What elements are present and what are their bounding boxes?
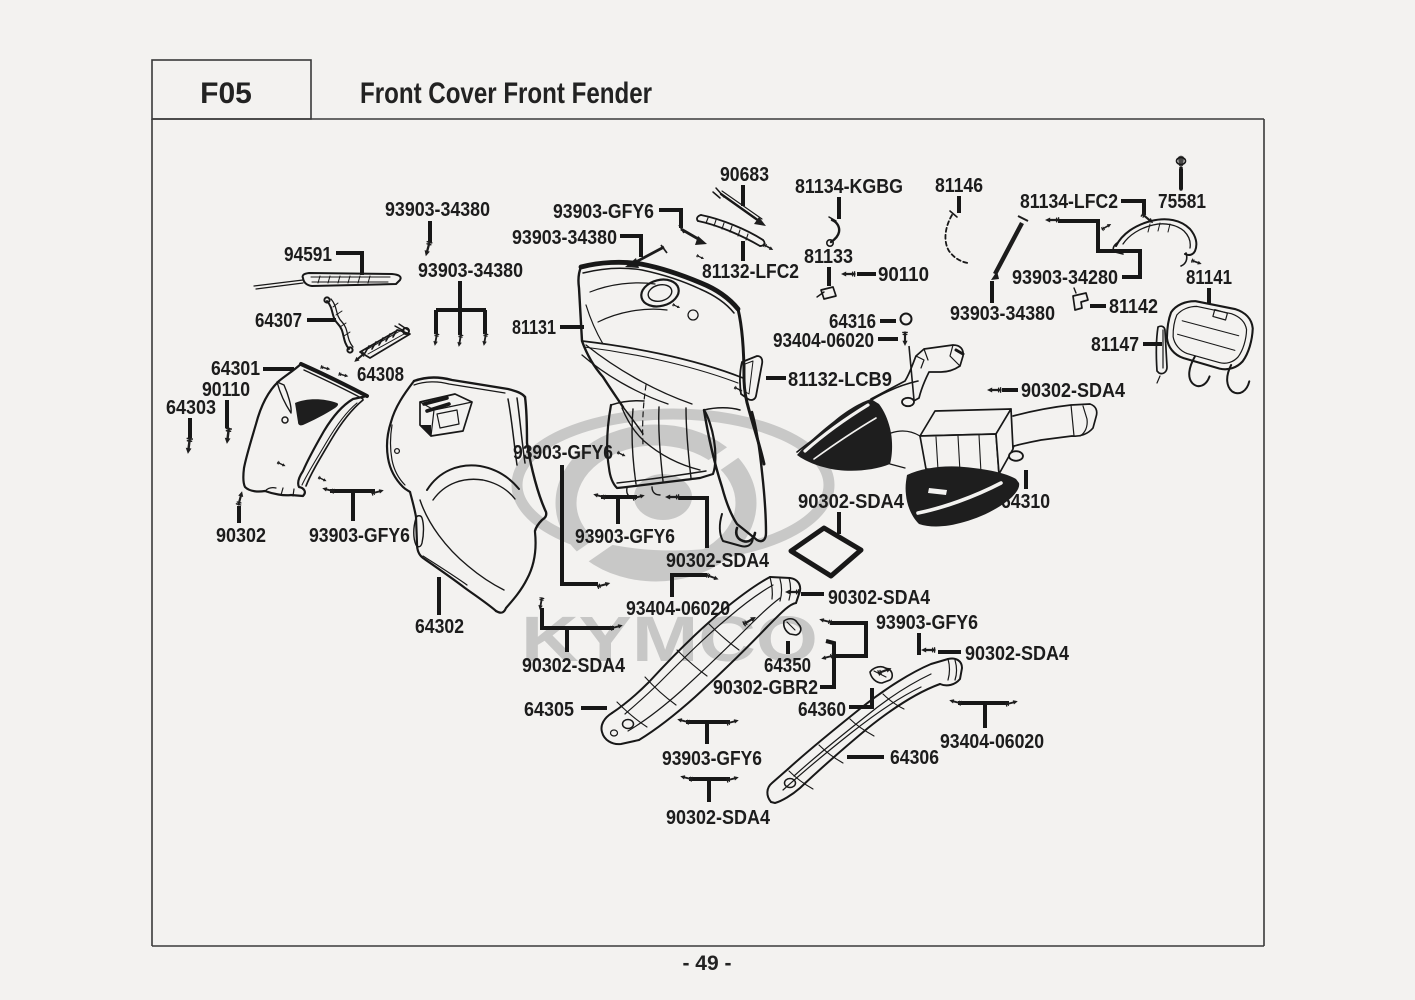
svg-text:90302-SDA4: 90302-SDA4 — [965, 643, 1070, 665]
svg-text:81134-LFC2: 81134-LFC2 — [1020, 191, 1118, 213]
svg-text:81131: 81131 — [512, 317, 556, 339]
svg-text:75581: 75581 — [1158, 191, 1206, 213]
svg-text:F05: F05 — [200, 77, 252, 110]
svg-text:64308: 64308 — [357, 364, 404, 386]
svg-text:90302-SDA4: 90302-SDA4 — [798, 491, 905, 513]
svg-text:90683: 90683 — [720, 164, 769, 186]
svg-text:94591: 94591 — [284, 244, 332, 266]
svg-text:93903-GFY6: 93903-GFY6 — [309, 525, 410, 547]
svg-text:64301: 64301 — [211, 358, 260, 380]
svg-text:93903-GFY6: 93903-GFY6 — [575, 526, 675, 548]
svg-text:93903-34380: 93903-34380 — [385, 199, 490, 221]
svg-text:90302-SDA4: 90302-SDA4 — [666, 550, 770, 572]
svg-text:93903-GFY6: 93903-GFY6 — [876, 612, 978, 634]
svg-text:81147: 81147 — [1091, 334, 1139, 356]
svg-text:93903-34380: 93903-34380 — [950, 303, 1055, 325]
svg-text:90302-GBR2: 90302-GBR2 — [713, 677, 818, 699]
svg-text:93903-34380: 93903-34380 — [418, 260, 523, 282]
svg-text:81146: 81146 — [935, 175, 983, 197]
svg-text:90302-SDA4: 90302-SDA4 — [1021, 380, 1126, 402]
svg-text:93903-34280: 93903-34280 — [1012, 267, 1118, 289]
svg-text:- 49 -: - 49 - — [682, 952, 731, 975]
svg-text:93903-34380: 93903-34380 — [512, 227, 617, 249]
svg-text:93404-06020: 93404-06020 — [773, 330, 874, 352]
svg-text:64307: 64307 — [255, 310, 302, 332]
svg-text:90302-SDA4: 90302-SDA4 — [666, 807, 771, 829]
svg-text:81142: 81142 — [1109, 296, 1158, 318]
svg-text:81132-LCB9: 81132-LCB9 — [788, 369, 892, 391]
svg-text:93404-06020: 93404-06020 — [940, 731, 1044, 753]
svg-text:81134-KGBG: 81134-KGBG — [795, 176, 903, 198]
svg-text:90302: 90302 — [216, 525, 266, 547]
svg-text:64303: 64303 — [166, 397, 216, 419]
svg-text:Front Cover Front Fender: Front Cover Front Fender — [360, 77, 652, 110]
svg-text:81132-LFC2: 81132-LFC2 — [702, 261, 799, 283]
svg-text:64305: 64305 — [524, 699, 574, 721]
svg-text:90110: 90110 — [878, 264, 929, 286]
svg-text:93903-GFY6: 93903-GFY6 — [662, 748, 762, 770]
svg-text:90302-SDA4: 90302-SDA4 — [828, 587, 931, 609]
svg-text:64306: 64306 — [890, 747, 939, 769]
svg-text:64360: 64360 — [798, 699, 846, 721]
svg-text:64302: 64302 — [415, 616, 464, 638]
svg-text:81141: 81141 — [1186, 267, 1232, 289]
svg-text:90302-SDA4: 90302-SDA4 — [522, 655, 626, 677]
svg-text:64350: 64350 — [764, 655, 811, 677]
svg-text:93903-GFY6: 93903-GFY6 — [553, 201, 654, 223]
svg-text:81133: 81133 — [804, 246, 853, 268]
